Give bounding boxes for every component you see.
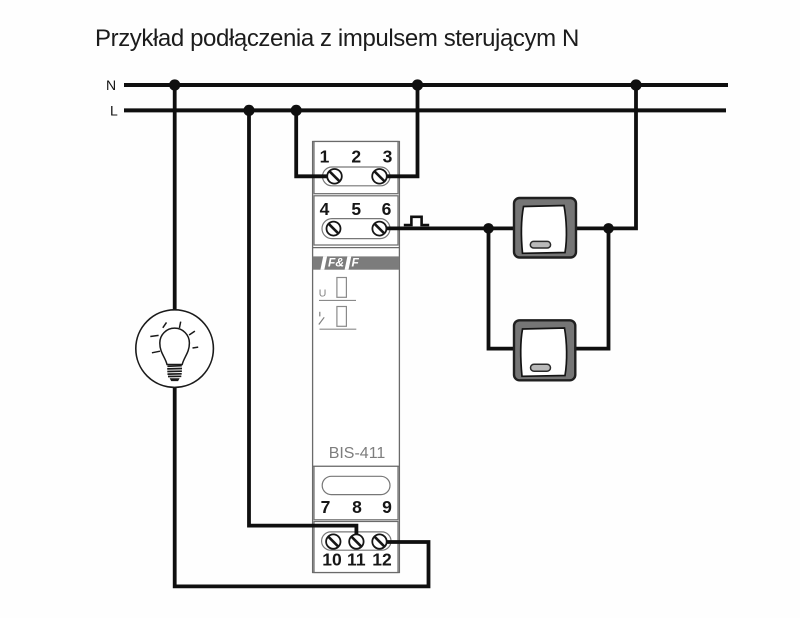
svg-text:1: 1	[320, 147, 330, 167]
svg-text:11: 11	[347, 550, 366, 570]
svg-text:F: F	[352, 256, 360, 270]
svg-text:BIS-411: BIS-411	[329, 445, 386, 462]
svg-text:3: 3	[383, 147, 393, 167]
svg-text:8: 8	[352, 497, 362, 517]
svg-text:10: 10	[322, 550, 342, 570]
svg-text:2: 2	[351, 147, 361, 167]
svg-text:6: 6	[382, 199, 392, 219]
svg-text:4: 4	[320, 199, 330, 219]
svg-text:5: 5	[351, 199, 361, 219]
svg-text:Przykład podłączenia z impulse: Przykład podłączenia z impulsem sterując…	[95, 25, 579, 52]
svg-text:7: 7	[321, 497, 331, 517]
svg-text:9: 9	[382, 497, 392, 517]
svg-text:L: L	[110, 103, 118, 119]
svg-text:12: 12	[372, 550, 392, 570]
svg-text:F&: F&	[328, 256, 344, 270]
svg-text:N: N	[106, 77, 116, 93]
svg-text:U: U	[319, 288, 327, 300]
